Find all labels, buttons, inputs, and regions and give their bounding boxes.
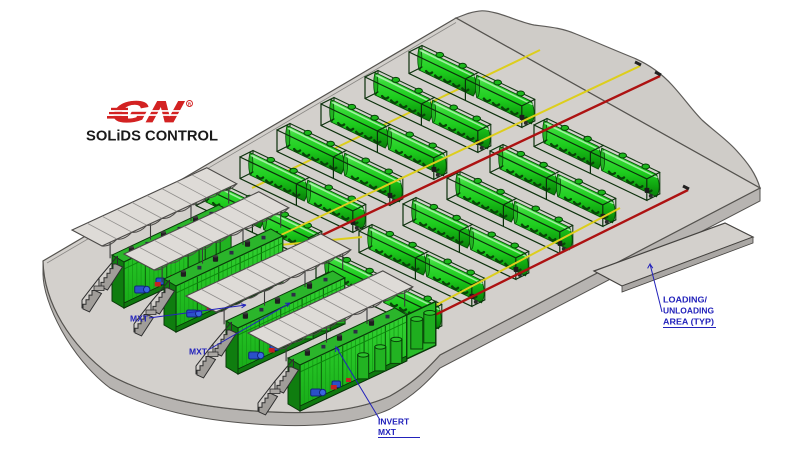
svg-text:MXT: MXT (189, 347, 208, 357)
svg-text:MXT: MXT (378, 427, 397, 437)
svg-text:SOLiDS CONTROL: SOLiDS CONTROL (86, 129, 218, 145)
svg-text:INVERT: INVERT (378, 417, 410, 427)
svg-text:LOADING/: LOADING/ (663, 295, 708, 305)
svg-text:MXT: MXT (130, 314, 149, 324)
svg-text:UNLOADING: UNLOADING (663, 306, 714, 316)
svg-text:AREA (TYP): AREA (TYP) (663, 317, 714, 327)
